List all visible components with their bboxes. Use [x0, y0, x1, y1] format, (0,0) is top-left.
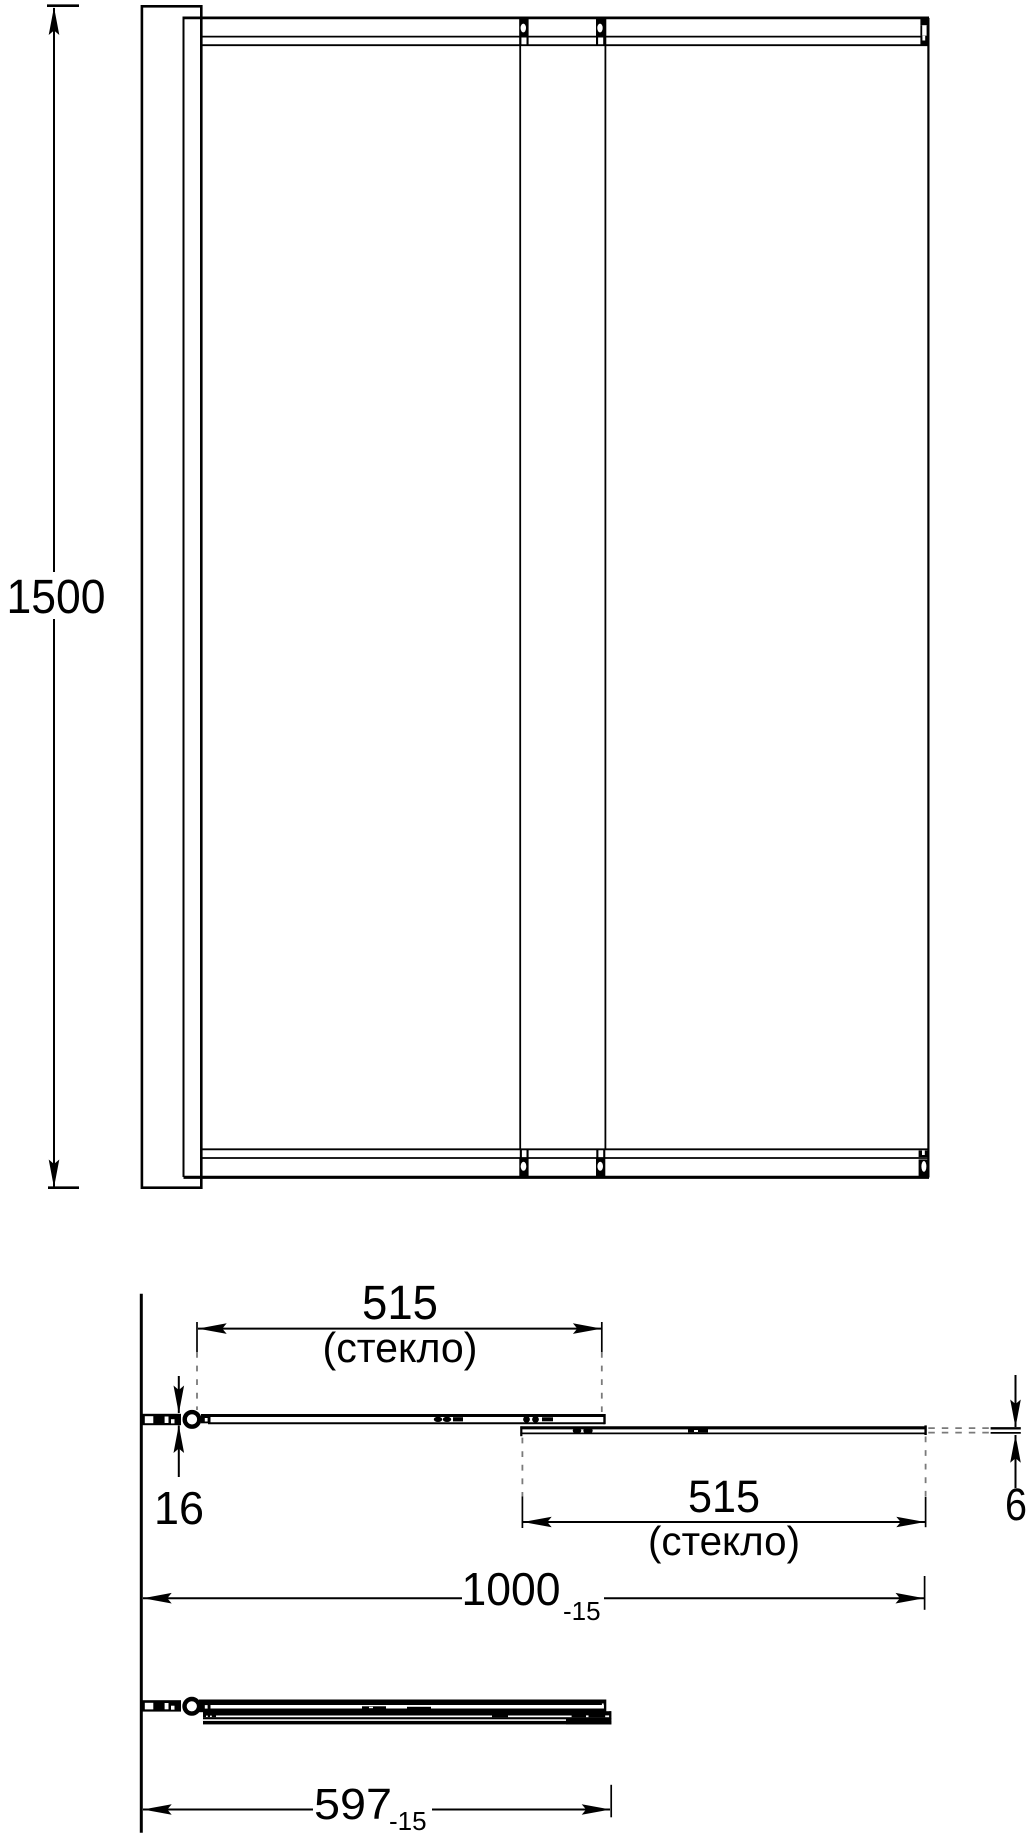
svg-text:16: 16: [154, 1482, 204, 1534]
svg-text:6: 6: [1005, 1479, 1027, 1530]
svg-text:(стекло): (стекло): [323, 1324, 478, 1371]
svg-text:1000: 1000: [462, 1563, 561, 1615]
svg-text:-15: -15: [563, 1596, 601, 1626]
svg-text:1500: 1500: [7, 571, 106, 624]
svg-text:515: 515: [362, 1277, 438, 1330]
svg-text:(стекло): (стекло): [648, 1518, 800, 1564]
svg-text:597: 597: [314, 1780, 392, 1829]
svg-text:-15: -15: [389, 1806, 427, 1836]
svg-text:515: 515: [688, 1471, 760, 1522]
